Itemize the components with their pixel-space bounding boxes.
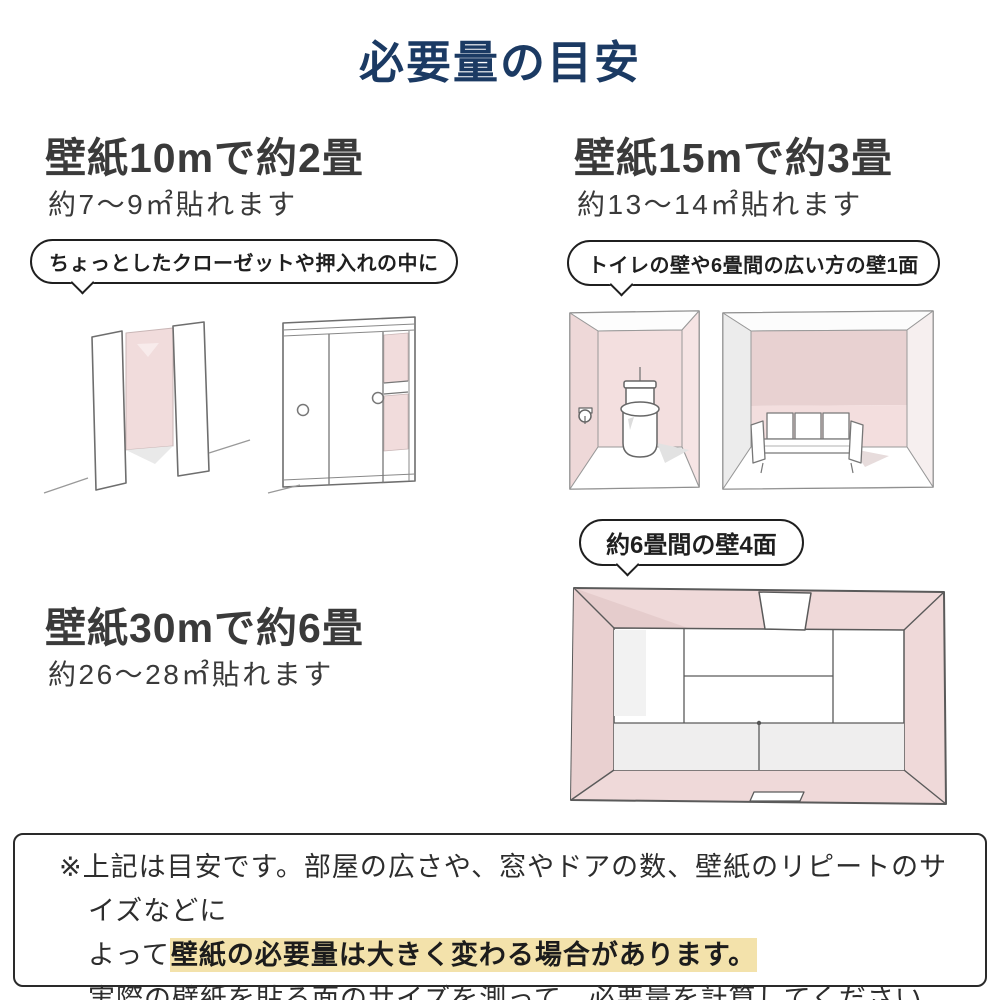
disclaimer-note-box: ※上記は目安です。部屋の広さや、窓やドアの数、壁紙のリピートのサイズなどに よっ… [13, 833, 987, 987]
sliding-door-closet-drawing [268, 317, 415, 493]
open-closet-drawing [44, 322, 250, 493]
note-line-2: よって壁紙の必要量は大きく変わる場合があります。 [88, 933, 967, 977]
section-15m-subtext: 約13〜14㎡貼れます [577, 183, 863, 223]
section-30m-heading: 壁紙30mで約6畳 [45, 594, 364, 654]
page-title: 必要量の目安 [0, 26, 1000, 91]
six-tatami-room-top-view-illustration [568, 580, 950, 812]
note-line-2-prefix: よって [88, 940, 170, 970]
tatami-room-drawing [571, 588, 946, 804]
section-30m-subtext: 約26〜28㎡貼れます [48, 653, 334, 693]
speech-bubble-text: ちょっとしたクローゼットや押入れの中に [49, 247, 439, 276]
section-15m-heading: 壁紙15mで約3畳 [574, 124, 893, 184]
note-line-1: ※上記は目安です。部屋の広さや、窓やドアの数、壁紙のリピートのサイズなどに [88, 845, 967, 933]
toilet-and-living-room-illustration [553, 297, 978, 502]
section-10m-subtext: 約7〜9㎡貼れます [48, 183, 298, 223]
note-line-3: 実際の壁紙を貼る面のサイズを測って、必要量を計算してください。 [88, 977, 967, 1000]
toilet-room-drawing [570, 311, 699, 489]
section-10m-heading: 壁紙10mで約2畳 [45, 124, 364, 184]
section-10m-speech-bubble: ちょっとしたクローゼットや押入れの中に [30, 239, 458, 284]
wallpaper-quantity-guide: 必要量の目安 壁紙10mで約2畳 約7〜9㎡貼れます ちょっとしたクローゼットや… [0, 0, 1000, 1000]
section-15m-speech-bubble: トイレの壁や6畳間の広い方の壁1面 [567, 240, 940, 286]
section-6tatami-speech-bubble: 約6畳間の壁4面 [579, 519, 804, 566]
speech-bubble-text: 約6畳間の壁4面 [606, 525, 777, 560]
note-line-2-highlight: 壁紙の必要量は大きく変わる場合があります。 [170, 938, 757, 972]
closet-and-oshiire-illustration [42, 297, 487, 507]
living-room-drawing [723, 311, 933, 489]
speech-bubble-text: トイレの壁や6畳間の広い方の壁1面 [588, 249, 919, 278]
